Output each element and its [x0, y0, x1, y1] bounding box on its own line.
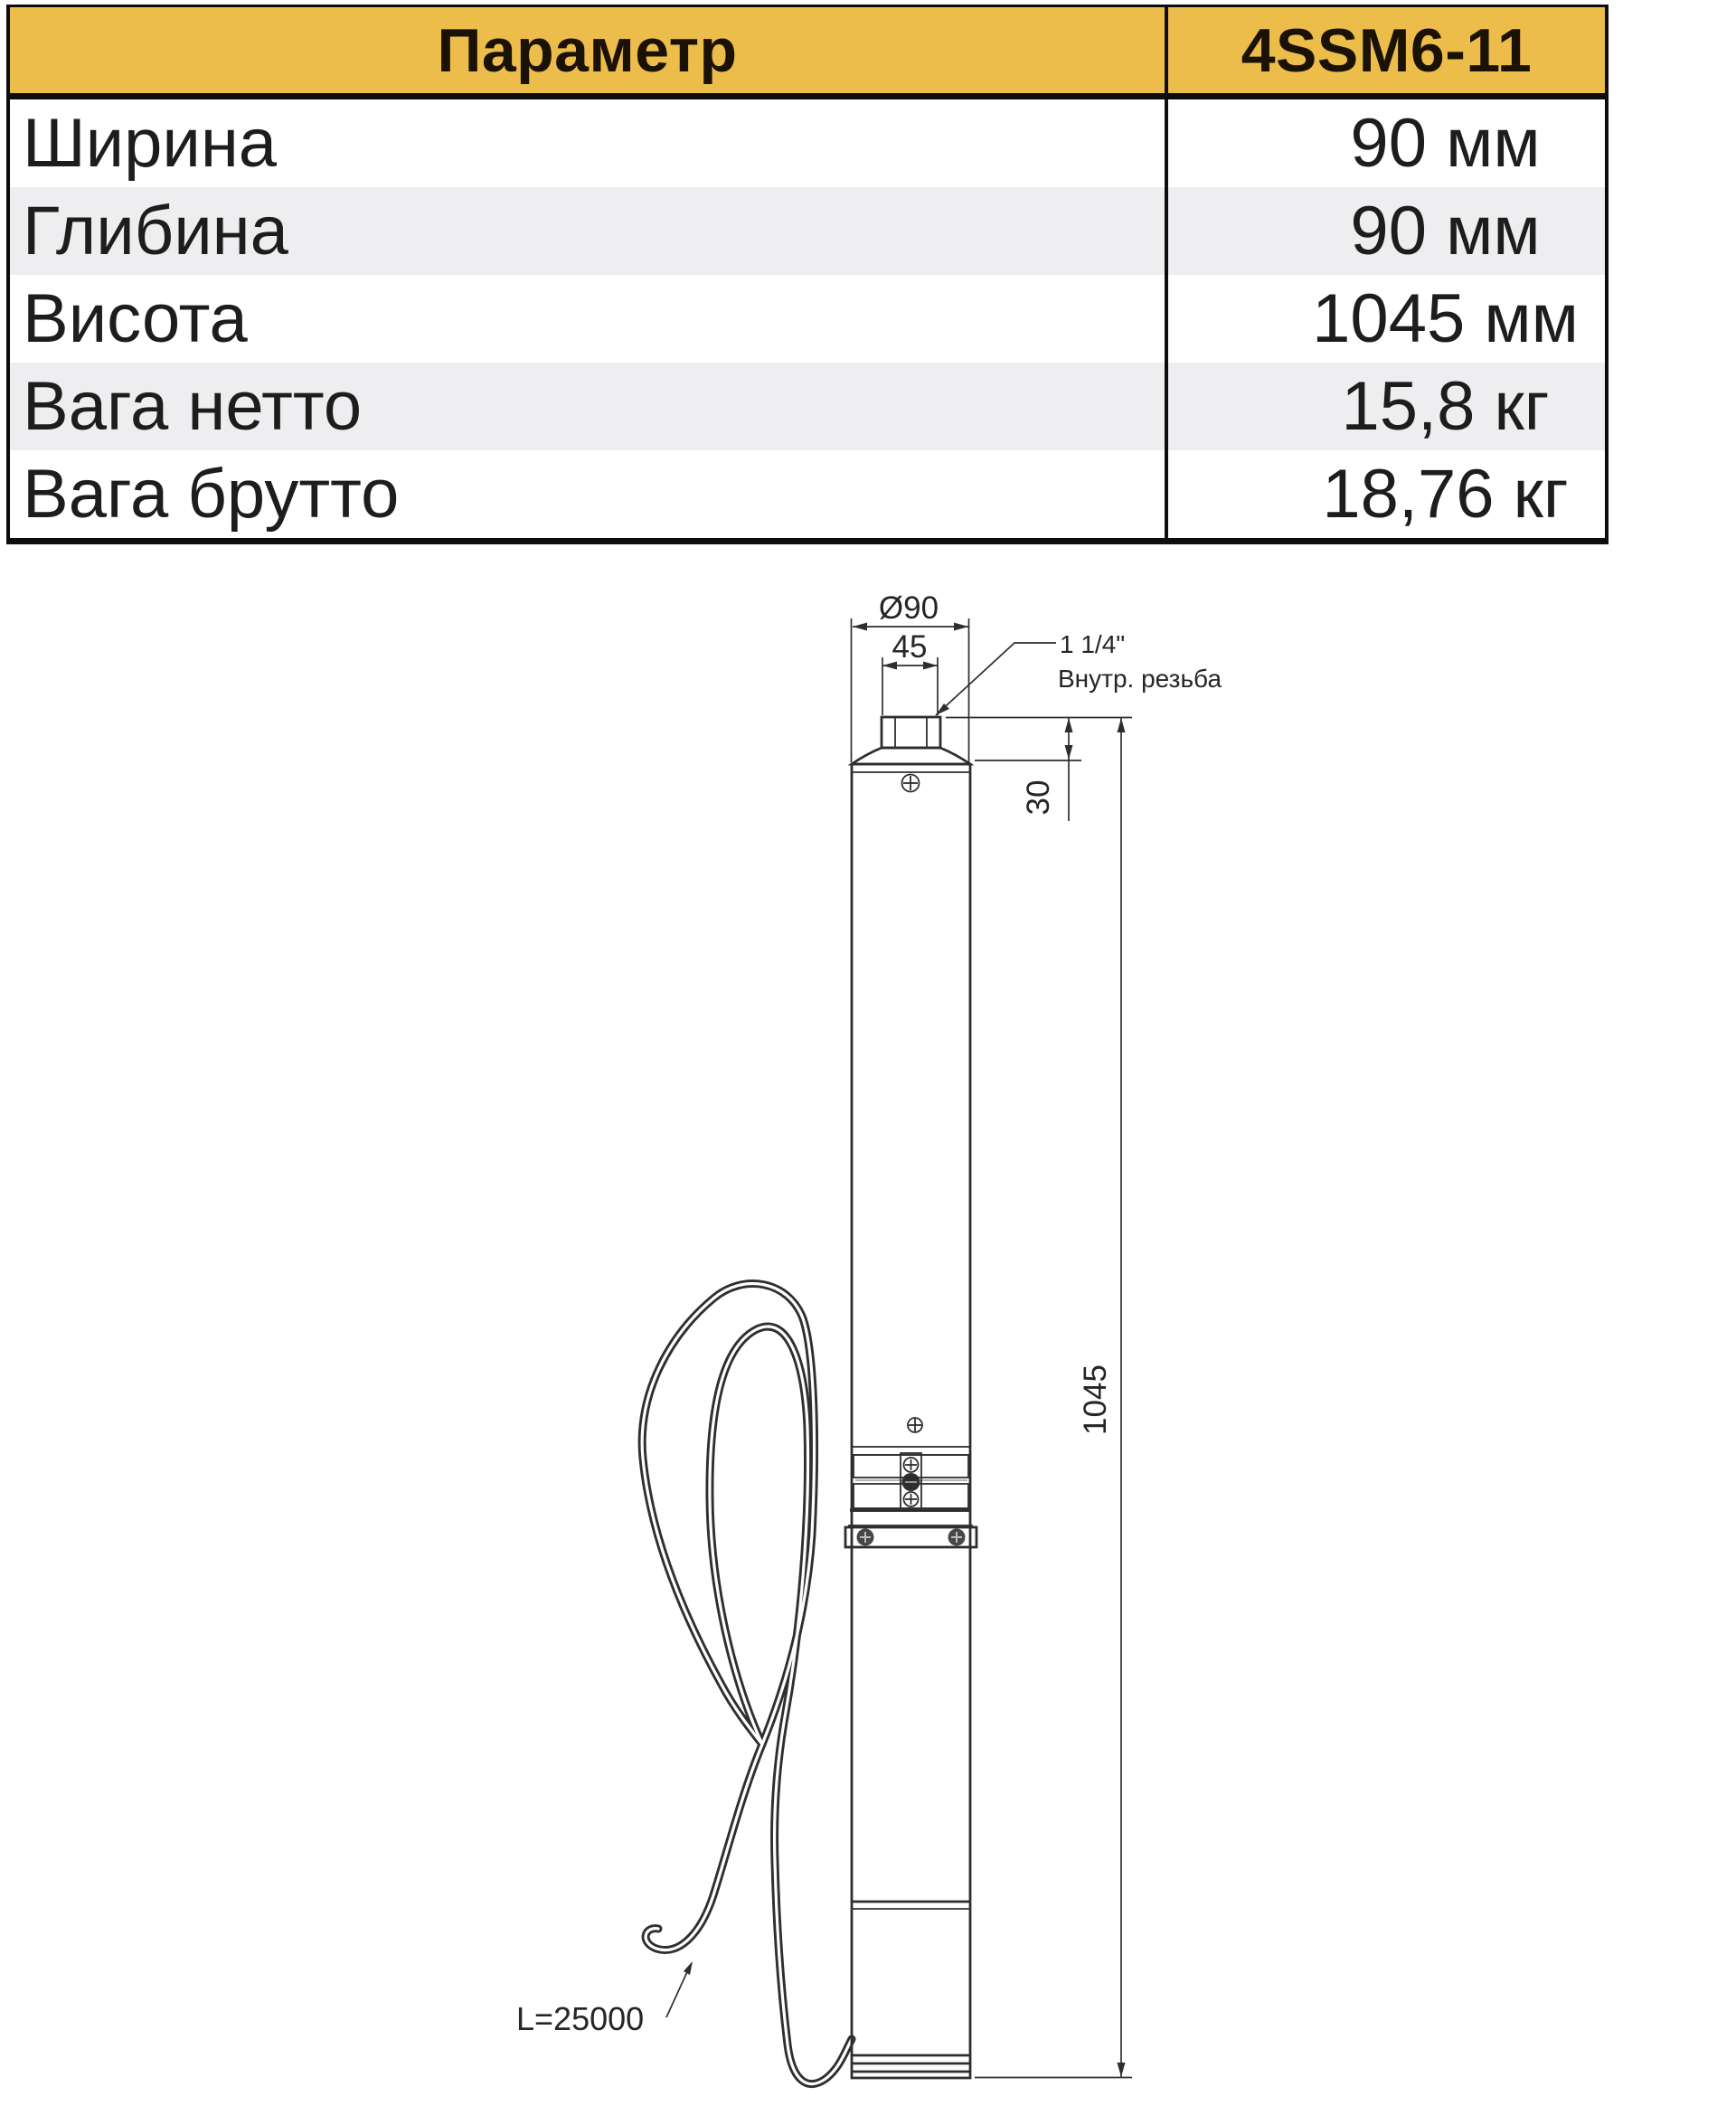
dimension-diameter: Ø90: [852, 590, 969, 762]
thread-callout: 1 1/4" Внутр. резьба: [936, 630, 1222, 715]
thread-size-label: 1 1/4": [1060, 630, 1125, 658]
flange-screw-left: [857, 1529, 874, 1546]
cable-length-callout: L=25000: [516, 1961, 693, 2037]
pump-body: [852, 764, 970, 2078]
body-screw-middle: [908, 1418, 922, 1432]
cable-length-label: L=25000: [516, 2000, 644, 2037]
thread-note-label: Внутр. резьба: [1058, 665, 1222, 693]
thread-width-label: 45: [892, 629, 928, 665]
dimension-total-height: 1045: [975, 718, 1132, 2078]
total-height-label: 1045: [1078, 1364, 1113, 1435]
dimension-thread-width: 45: [882, 629, 938, 715]
pump-technical-drawing: Ø90 45 1 1/4" Внутр. резьба 30: [0, 0, 1736, 2115]
body-screw-top: [902, 775, 920, 792]
dimension-top-offset: 30: [946, 718, 1132, 822]
flange-screw-right: [948, 1529, 966, 1546]
power-cable: [642, 1284, 852, 2084]
coupling-band: [845, 1447, 976, 1547]
top-offset-label: 30: [1021, 780, 1056, 816]
pump-top-fitting: [852, 717, 970, 764]
page: Параметр 4SSM6-11 Ширина 90 мм Глибина 9…: [0, 0, 1736, 2115]
diameter-label: Ø90: [879, 590, 939, 626]
